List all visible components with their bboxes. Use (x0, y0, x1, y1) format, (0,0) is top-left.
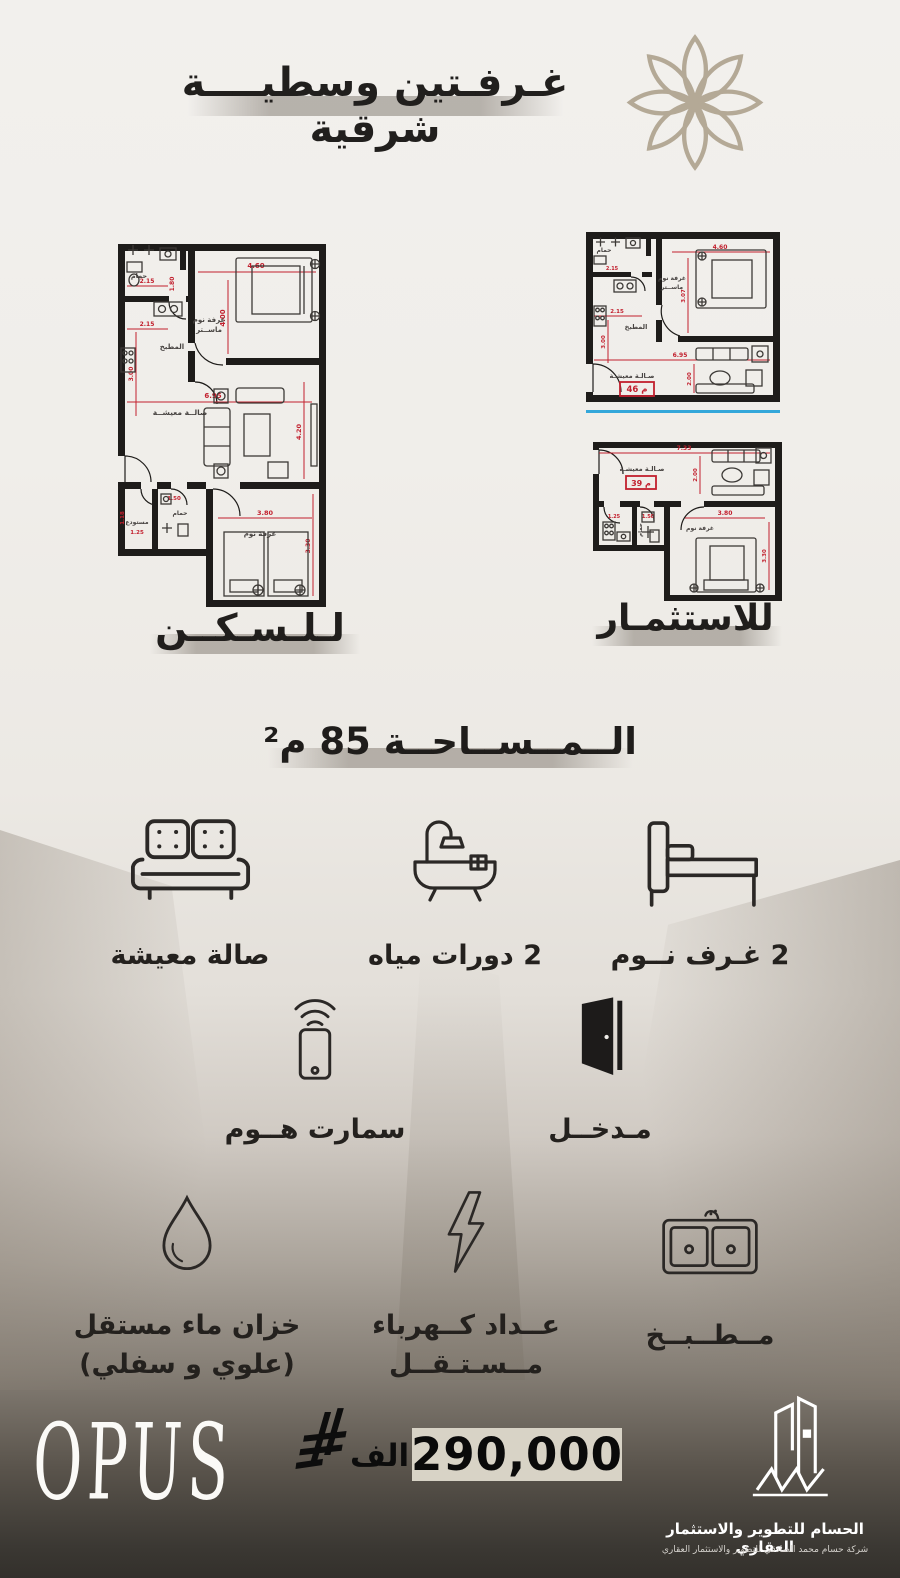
lightning-icon (435, 1178, 497, 1280)
svg-text:3.00: 3.00 (128, 367, 135, 382)
feature-bedrooms: 2 غـرف نــوم (580, 808, 820, 975)
feature-label: عــداد كــهرباء (372, 1306, 560, 1345)
feature-entrance: مـدخــل (480, 982, 720, 1149)
feature-label: 2 دورات مياه (368, 936, 542, 975)
sofa-icon (128, 808, 253, 910)
feature-label-2: (علوي و سفلي) (79, 1345, 295, 1384)
svg-text:المطبخ: المطبخ (160, 343, 184, 351)
svg-text:1.25: 1.25 (130, 530, 144, 536)
svg-text:1.80: 1.80 (169, 277, 176, 292)
svg-text:1.25: 1.25 (608, 514, 621, 520)
price-value: 290,000 (412, 1428, 622, 1481)
svg-text:2.15: 2.15 (140, 321, 155, 328)
svg-text:7.33: 7.33 (677, 445, 692, 452)
residence-label: لـلـسـكــن (130, 606, 370, 650)
feature-electric-meter: عــداد كــهرباء مــسـتـقــل (346, 1178, 586, 1384)
svg-text:39 م: 39 م (631, 479, 651, 488)
svg-text:حمام: حمام (173, 510, 188, 517)
svg-text:2.15: 2.15 (610, 309, 624, 315)
svg-text:3.00: 3.00 (601, 335, 607, 349)
lotus-flower-icon (620, 30, 770, 175)
floor-plan-investment-lower: 7.33 2.00 صـالـة معيشـة 39 م 1.25 1.50 ح… (584, 430, 782, 612)
svg-text:6.95: 6.95 (673, 352, 688, 359)
blue-divider-line (586, 410, 780, 413)
svg-text:2.00: 2.00 (693, 468, 699, 482)
svg-text:غرفة نوم: غرفة نوم (244, 530, 277, 538)
investment-label: للاستثمـار (578, 598, 793, 639)
price-text: 290,000 (411, 1428, 623, 1481)
feature-label: خزان ماء مستقل (74, 1306, 301, 1345)
svg-text:ماســتر: ماســتر (195, 326, 222, 334)
bed-icon (638, 808, 763, 910)
svg-text:غرفة نوم: غرفة نوم (658, 275, 686, 282)
svg-text:1.50: 1.50 (167, 496, 181, 502)
kitchen-sink-icon (660, 1178, 760, 1280)
feature-label: صالة معيشة (111, 936, 270, 975)
svg-text:صالــة معيشــة: صالــة معيشــة (153, 408, 207, 417)
svg-text:حمام: حمام (597, 247, 612, 254)
svg-text:غرفة نوم: غرفة نوم (686, 525, 714, 532)
floor-plan-investment-upper: 4.60 حمام 2.15 2.15 3.00 المطبخ غرفة نوم… (584, 228, 782, 422)
feature-label: 2 غـرف نــوم (611, 936, 790, 975)
real-estate-poster: غـرفـتين وسطيــــة شرقية (0, 0, 900, 1578)
svg-text:3.80: 3.80 (257, 509, 274, 517)
price-unit: الف (350, 1438, 409, 1474)
svg-text:3.07: 3.07 (681, 289, 687, 303)
feature-kitchen: مــطــبــخ (590, 1178, 830, 1355)
area-title: الــمــســاحــة 85 م² (230, 720, 670, 763)
company-logo-icon (738, 1390, 853, 1520)
svg-text:ماســتر: ماســتر (660, 284, 683, 291)
svg-text:1.50: 1.50 (642, 514, 655, 520)
feature-living-room: صالة معيشة (70, 808, 310, 975)
feature-label: مــطــبــخ (646, 1316, 775, 1355)
page-title: غـرفـتين وسطيــــة شرقية (175, 60, 575, 152)
company-subtitle: شركة حسام محمد الصادقي للتطوير والاستثما… (638, 1545, 892, 1555)
opus-brand: OPUS (31, 1402, 230, 1525)
svg-text:حمام: حمام (638, 523, 644, 537)
svg-text:المطبخ: المطبخ (625, 323, 648, 331)
feature-bathrooms: 2 دورات مياه (335, 808, 575, 975)
svg-text:مستودع: مستودع (125, 519, 148, 526)
feature-label: مـدخــل (548, 1110, 652, 1149)
svg-text:3.80: 3.80 (718, 510, 733, 517)
door-icon (567, 982, 633, 1084)
floor-plan-residence: 4.60 4.00 2.15 1.80 حمام 2.15 3.00 المطب… (108, 236, 340, 614)
feature-label: سمارت هــوم (225, 1110, 406, 1149)
svg-text:3.30: 3.30 (762, 549, 768, 563)
svg-text:صـالـة معيشـة: صـالـة معيشـة (620, 465, 665, 473)
bathtub-icon (405, 808, 505, 910)
smart-home-icon (276, 982, 354, 1084)
feature-smart-home: سمارت هــوم (195, 982, 435, 1149)
saudi-riyal-icon (292, 1408, 350, 1488)
feature-water-tank: خزان ماء مستقل (علوي و سفلي) (67, 1178, 307, 1384)
svg-text:غرفة نوم: غرفة نوم (193, 316, 226, 324)
feature-label-2: مــسـتـقــل (389, 1345, 543, 1384)
svg-text:2.15: 2.15 (606, 266, 619, 272)
svg-text:46 م: 46 م (626, 385, 647, 395)
svg-text:2.00: 2.00 (687, 372, 693, 386)
svg-text:صـالـة معيشـة: صـالـة معيشـة (610, 372, 655, 380)
water-drop-icon (154, 1178, 220, 1280)
svg-text:4.20: 4.20 (295, 424, 303, 441)
